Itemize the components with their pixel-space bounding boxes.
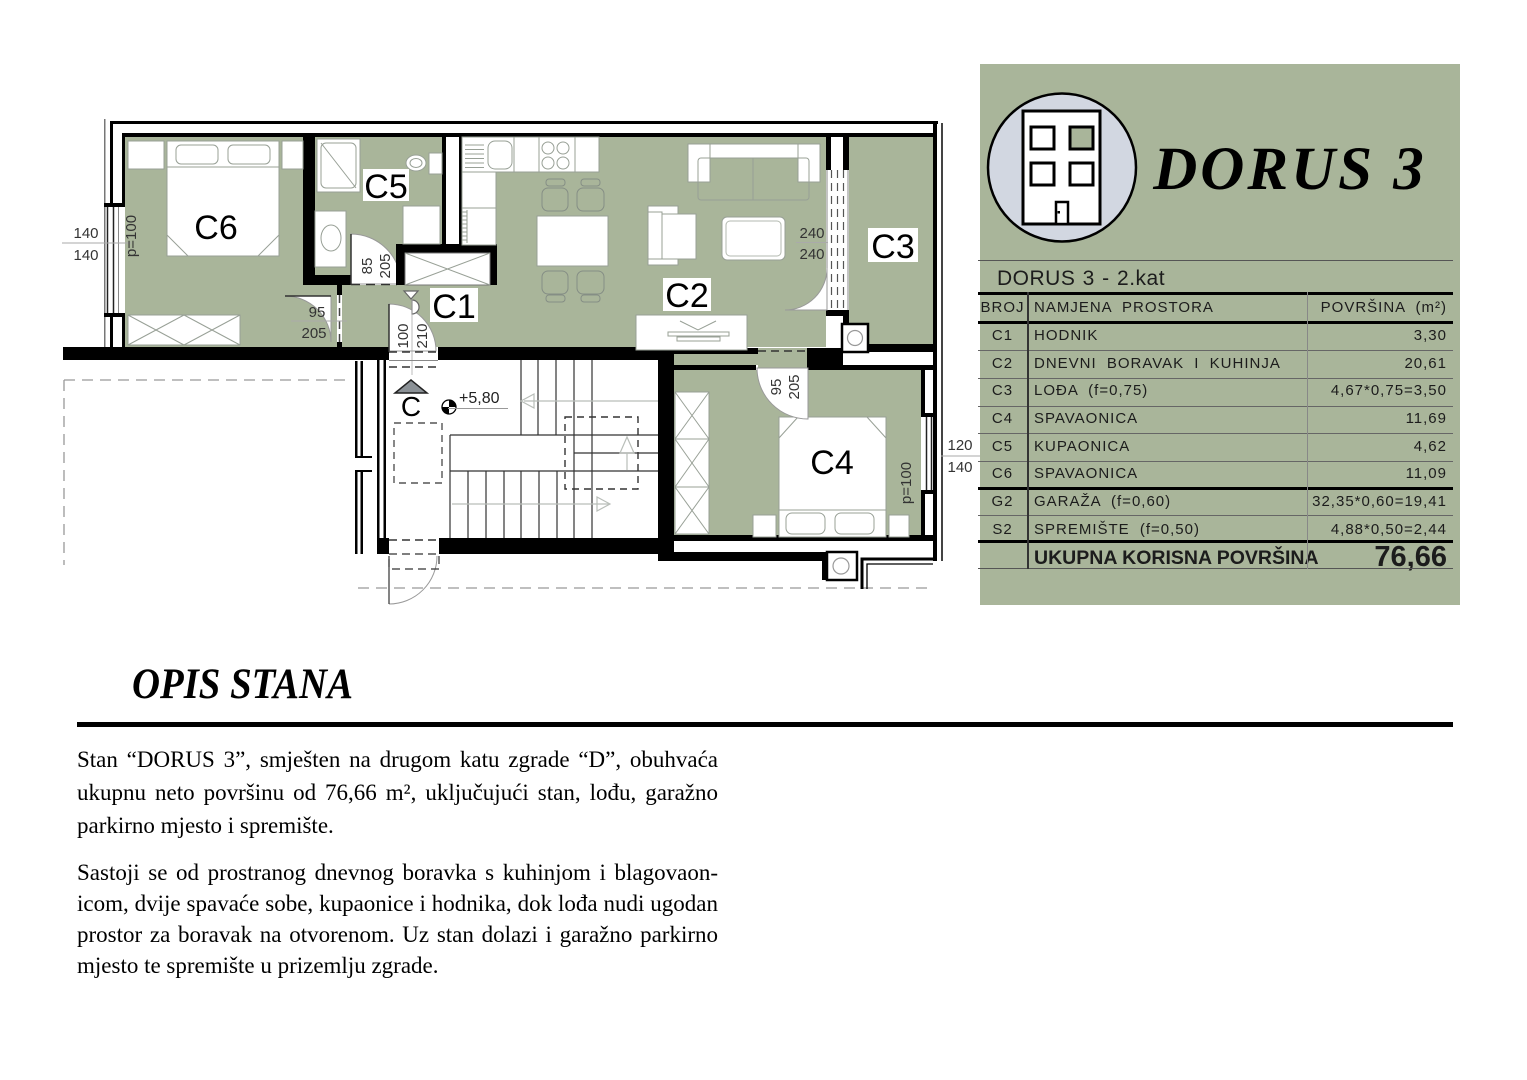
svg-text:95: 95	[309, 304, 326, 321]
svg-text:210: 210	[414, 323, 431, 348]
svg-text:C5: C5	[364, 168, 407, 206]
svg-text:120: 120	[947, 437, 972, 454]
svg-text:205: 205	[301, 325, 326, 342]
svg-text:C3: C3	[871, 228, 914, 266]
svg-text:C: C	[401, 391, 421, 422]
svg-text:95: 95	[768, 379, 785, 396]
svg-text:p=100: p=100	[123, 215, 140, 257]
svg-text:140: 140	[73, 247, 98, 264]
svg-text:C6: C6	[194, 209, 237, 247]
svg-text:C2: C2	[665, 277, 708, 315]
svg-text:85: 85	[359, 258, 376, 275]
svg-text:C4: C4	[810, 444, 853, 482]
svg-text:C1: C1	[432, 288, 475, 326]
svg-text:205: 205	[786, 374, 803, 399]
svg-text:240: 240	[799, 246, 824, 263]
svg-text:140: 140	[947, 459, 972, 476]
svg-text:+5,80: +5,80	[459, 390, 500, 407]
svg-text:205: 205	[377, 253, 394, 278]
svg-text:240: 240	[799, 225, 824, 242]
svg-text:100: 100	[395, 323, 412, 348]
svg-text:140: 140	[73, 225, 98, 242]
svg-text:p=100: p=100	[898, 462, 915, 504]
